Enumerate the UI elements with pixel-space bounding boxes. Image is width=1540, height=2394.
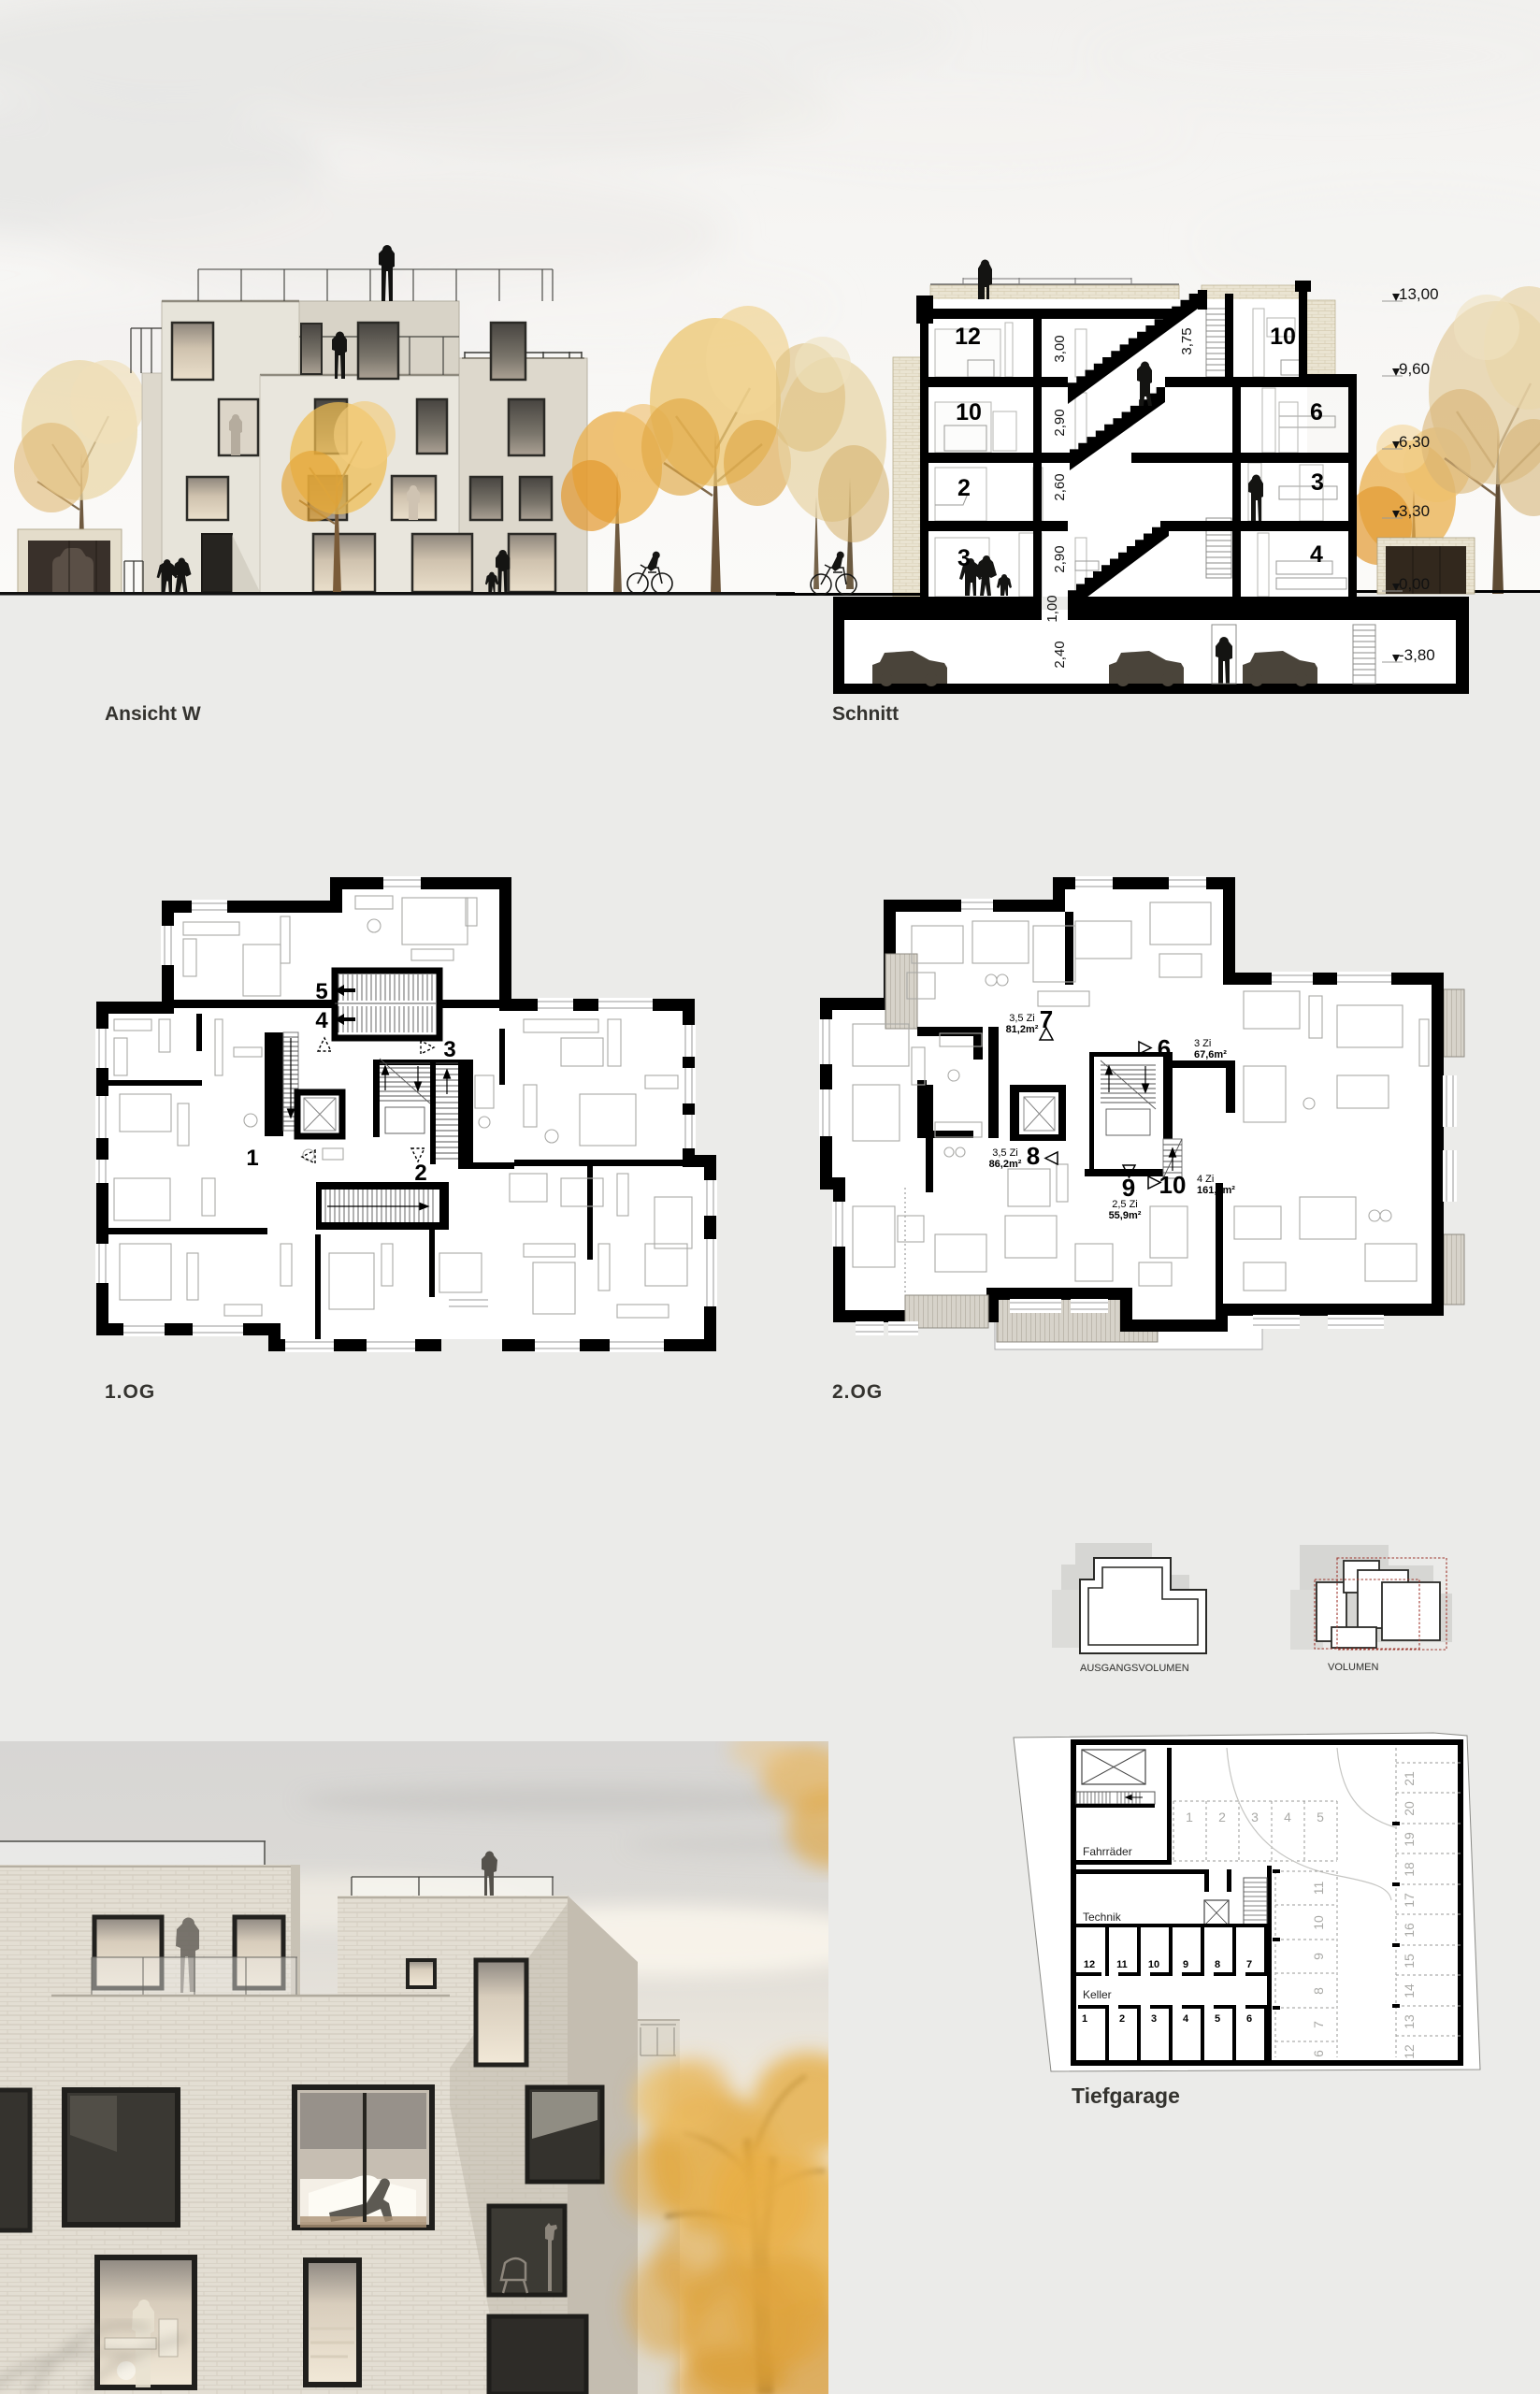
svg-text:2,60: 2,60 (1052, 473, 1068, 500)
svg-text:12: 12 (955, 324, 981, 350)
svg-text:14: 14 (1402, 1983, 1417, 1998)
svg-text:1: 1 (246, 1146, 258, 1171)
svg-text:9,60: 9,60 (1399, 360, 1430, 378)
svg-text:3: 3 (443, 1037, 455, 1062)
svg-text:15: 15 (1402, 1954, 1417, 1969)
svg-text:21: 21 (1402, 1771, 1417, 1786)
svg-text:2: 2 (1119, 2013, 1125, 2025)
svg-text:8: 8 (1311, 1987, 1326, 1995)
svg-text:-3,80: -3,80 (1399, 646, 1435, 664)
svg-text:1: 1 (1186, 1810, 1193, 1824)
svg-text:8: 8 (1027, 1142, 1040, 1170)
svg-text:2,40: 2,40 (1052, 641, 1068, 668)
svg-text:11: 11 (1311, 1882, 1326, 1896)
svg-text:13: 13 (1402, 2014, 1417, 2029)
svg-text:3,5 Zi: 3,5 Zi (992, 1147, 1018, 1159)
svg-text:9: 9 (1311, 1953, 1326, 1960)
svg-text:12: 12 (1084, 1959, 1095, 1970)
svg-text:2: 2 (414, 1161, 426, 1186)
svg-text:4 Zi: 4 Zi (1197, 1174, 1214, 1185)
svg-text:2,5 Zi: 2,5 Zi (1112, 1199, 1138, 1210)
svg-text:6: 6 (1310, 399, 1323, 425)
svg-text:3,5 Zi: 3,5 Zi (1009, 1013, 1035, 1024)
svg-text:2,90: 2,90 (1052, 545, 1068, 572)
svg-text:3,75: 3,75 (1179, 327, 1195, 354)
svg-text:2: 2 (957, 475, 971, 501)
svg-text:3: 3 (957, 545, 971, 571)
svg-text:7: 7 (1246, 1959, 1252, 1970)
svg-text:1,00: 1,00 (1044, 595, 1060, 622)
svg-text:6: 6 (1311, 2050, 1326, 2057)
svg-text:10: 10 (1159, 1171, 1187, 1199)
svg-text:4: 4 (1284, 1810, 1291, 1824)
svg-text:6: 6 (1246, 2013, 1252, 2025)
svg-text:55,9m²: 55,9m² (1109, 1210, 1142, 1221)
svg-text:5: 5 (315, 979, 327, 1004)
svg-text:3,00: 3,00 (1052, 335, 1068, 362)
svg-text:20: 20 (1402, 1801, 1417, 1816)
svg-text:12: 12 (1402, 2044, 1417, 2059)
svg-text:Technik: Technik (1083, 1911, 1122, 1924)
svg-text:0,00: 0,00 (1399, 575, 1430, 593)
svg-text:10: 10 (956, 399, 982, 425)
svg-text:3: 3 (1151, 2013, 1157, 2025)
svg-text:13,00: 13,00 (1399, 285, 1439, 303)
svg-text:18: 18 (1402, 1862, 1417, 1877)
svg-text:Fahrräder: Fahrräder (1083, 1845, 1132, 1858)
svg-text:10: 10 (1311, 1915, 1326, 1930)
svg-text:16: 16 (1402, 1923, 1417, 1938)
svg-text:2,90: 2,90 (1052, 409, 1068, 436)
svg-text:2: 2 (1218, 1810, 1226, 1824)
svg-text:5: 5 (1215, 2013, 1220, 2025)
svg-text:9: 9 (1183, 1959, 1188, 1970)
svg-text:8: 8 (1215, 1959, 1220, 1970)
svg-text:3: 3 (1251, 1810, 1259, 1824)
svg-text:161,7m²: 161,7m² (1197, 1185, 1235, 1196)
svg-text:86,2m²: 86,2m² (989, 1159, 1022, 1170)
svg-text:4: 4 (315, 1008, 328, 1033)
svg-text:81,2m²: 81,2m² (1006, 1024, 1039, 1035)
svg-text:VOLUMEN: VOLUMEN (1328, 1662, 1378, 1673)
svg-text:3: 3 (1311, 469, 1324, 496)
svg-text:1: 1 (1082, 2013, 1087, 2025)
svg-text:6: 6 (1158, 1034, 1171, 1062)
svg-text:Keller: Keller (1083, 1988, 1112, 2001)
svg-text:4: 4 (1310, 541, 1323, 568)
svg-text:3 Zi: 3 Zi (1194, 1038, 1211, 1049)
svg-text:AUSGANGSVOLUMEN: AUSGANGSVOLUMEN (1080, 1663, 1189, 1674)
svg-text:5: 5 (1317, 1810, 1324, 1824)
svg-text:7: 7 (1311, 2021, 1326, 2028)
svg-text:10: 10 (1148, 1959, 1159, 1970)
svg-text:19: 19 (1402, 1832, 1417, 1847)
svg-text:3,30: 3,30 (1399, 502, 1430, 520)
svg-text:67,6m²: 67,6m² (1194, 1049, 1227, 1060)
svg-text:10: 10 (1270, 324, 1296, 350)
svg-text:17: 17 (1402, 1893, 1417, 1908)
svg-text:6,30: 6,30 (1399, 433, 1430, 451)
svg-text:4: 4 (1183, 2013, 1189, 2025)
svg-text:11: 11 (1116, 1959, 1128, 1970)
